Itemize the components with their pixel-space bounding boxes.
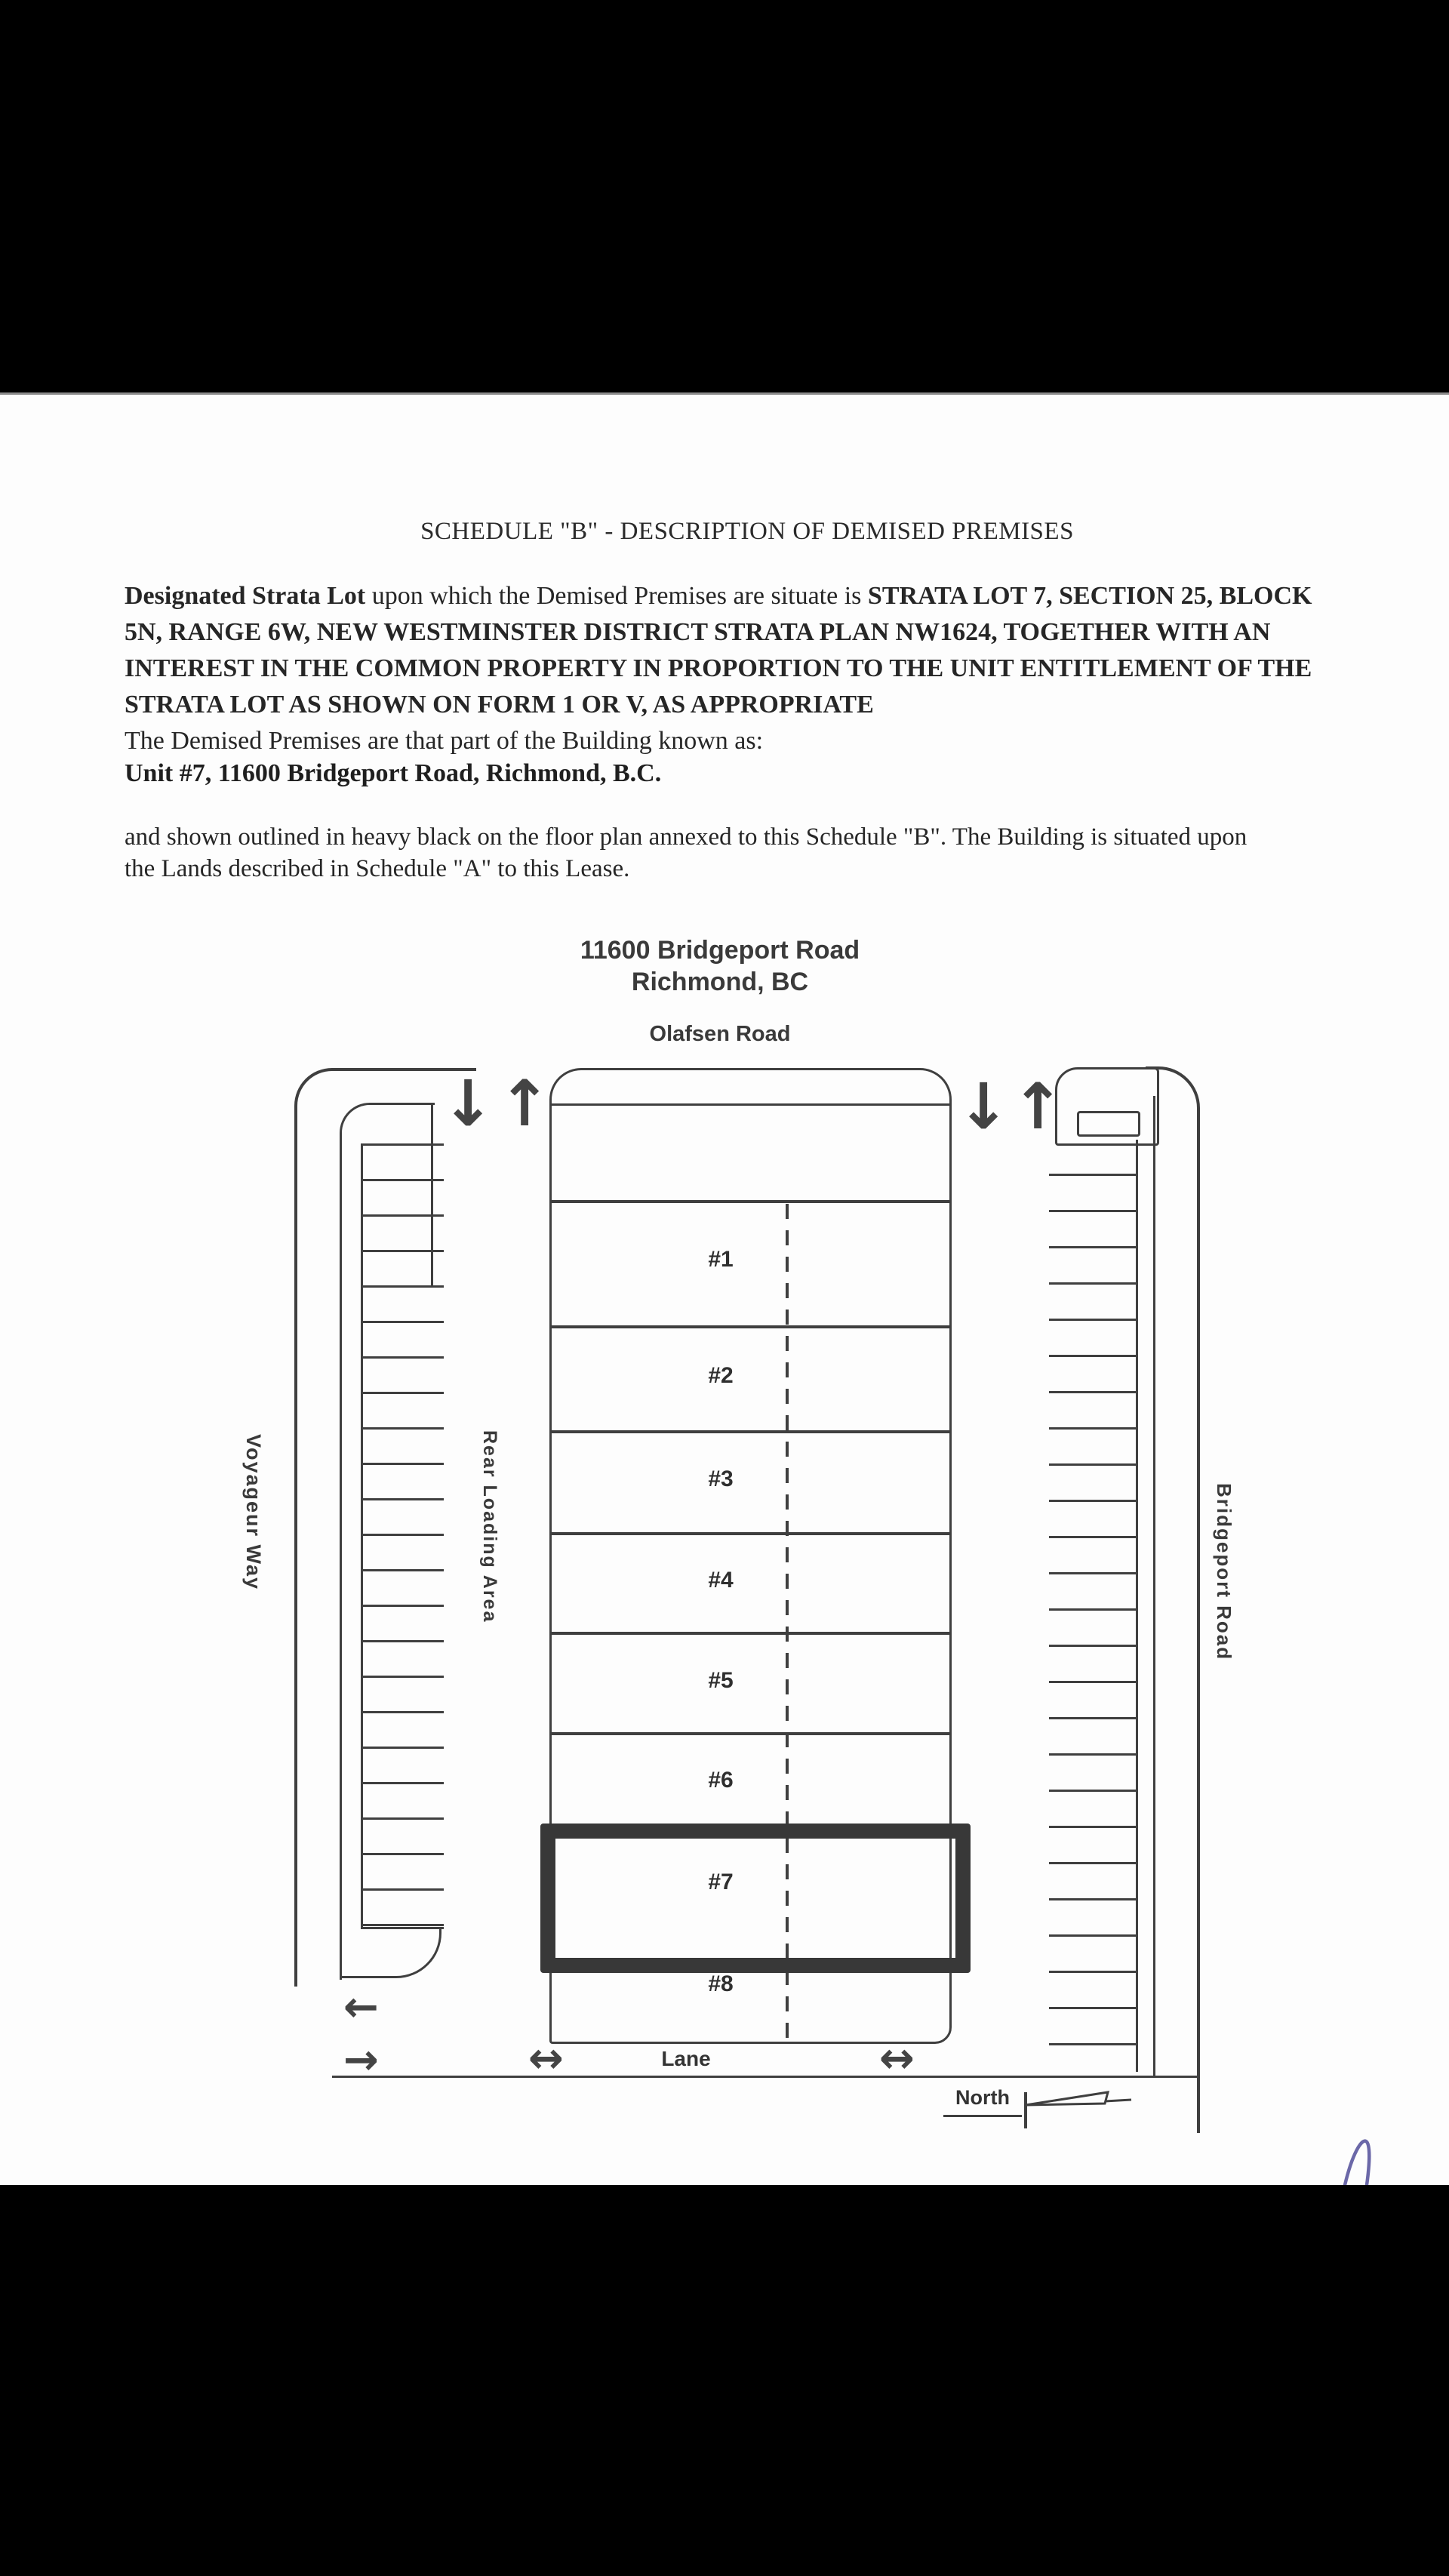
arrow-leftright-icon: ↔ [528, 2038, 564, 2080]
paragraph-line: 5N, RANGE 6W, NEW WESTMINSTER DISTRICT S… [125, 614, 1377, 651]
left-parking-edge-line [431, 1104, 433, 1285]
unit-divider [549, 1430, 952, 1433]
paragraph-line: STRATA LOT AS SHOWN ON FORM 1 OR V, AS A… [125, 687, 1377, 723]
unit-label-8: #8 [596, 1971, 845, 1997]
plan-title-address: 11600 Bridgeport Road [418, 936, 1022, 965]
arrow-leftright-icon: ↔ [879, 2038, 915, 2080]
unit-label-7: #7 [596, 1870, 845, 1895]
pen-mark [1337, 2134, 1392, 2185]
unit-divider [549, 1532, 952, 1535]
street-edge-line [332, 2076, 1197, 2078]
bottom-letterbox-bar [0, 2185, 1449, 2576]
north-text: North [955, 2086, 1010, 2109]
arrow-down-icon: ↓ [957, 1075, 1010, 1138]
paragraph-line: and shown outlined in heavy black on the… [125, 821, 1377, 853]
paragraph-line: INTEREST IN THE COMMON PROPERTY IN PROPO… [125, 651, 1377, 687]
road-label-olafsen: Olafsen Road [418, 1022, 1022, 1047]
arrow-left-icon: ← [343, 1987, 379, 2029]
top-letterbox-bar [0, 0, 1449, 395]
right-parking-stalls [1049, 1140, 1138, 2072]
arrow-up-icon: ↑ [498, 1072, 551, 1135]
road-label-voyageur-way: Voyageur Way [241, 1434, 265, 1590]
unit-address-line: Unit #7, 11600 Bridgeport Road, Richmond… [125, 759, 661, 788]
plan-title-city: Richmond, BC [418, 968, 1022, 997]
paragraph-line: The Demised Premises are that part of th… [125, 723, 1377, 759]
unit-label-4: #4 [596, 1568, 845, 1593]
arrow-down-icon: ↓ [441, 1072, 494, 1135]
unit-label-1: #1 [596, 1247, 845, 1273]
road-label-bridgeport: Bridgeport Road [1212, 1483, 1235, 1660]
sign-rectangle [1077, 1111, 1140, 1137]
unit-divider [549, 1325, 952, 1328]
units-top-line [549, 1200, 952, 1203]
area-label-rear-loading: Rear Loading Area [478, 1430, 500, 1623]
unit-divider [549, 1632, 952, 1635]
unit-label-6: #6 [596, 1768, 845, 1793]
unit-label-3: #3 [596, 1467, 845, 1492]
schedule-title: SCHEDULE "B" - DESCRIPTION OF DEMISED PR… [125, 518, 1370, 546]
strata-lot-paragraph: Designated Strata Lot upon which the Dem… [125, 578, 1377, 759]
unit-label-2: #2 [596, 1363, 845, 1389]
north-pennant-icon [1020, 2085, 1134, 2131]
lot-outer-boundary [1146, 1066, 1200, 2133]
unit-divider [549, 1732, 952, 1735]
outline-note-paragraph: and shown outlined in heavy black on the… [125, 821, 1377, 885]
paragraph-line: Designated Strata Lot upon which the Dem… [125, 578, 1377, 614]
paragraph-line: the Lands described in Schedule "A" to t… [125, 853, 1377, 885]
building-front-divider [549, 1103, 952, 1106]
road-label-lane: Lane [611, 2047, 761, 2071]
north-indicator-label: North [943, 2086, 1022, 2117]
demised-premises-highlight-outline [540, 1824, 971, 1973]
unit-label-5: #5 [596, 1668, 845, 1694]
